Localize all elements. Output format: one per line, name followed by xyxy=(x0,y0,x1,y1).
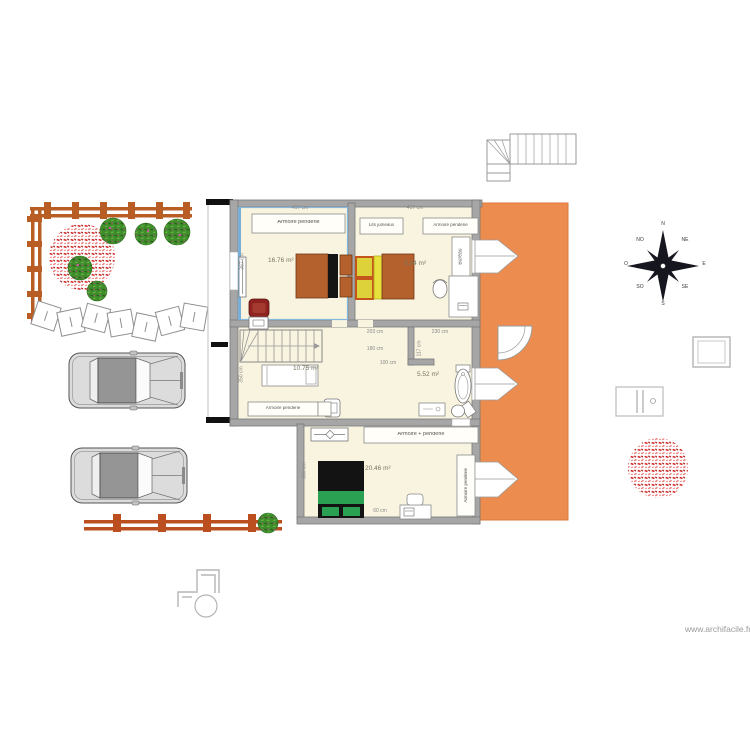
compass-e: E xyxy=(697,262,711,267)
dim-bottom-left-height: 330 cm xyxy=(303,453,308,489)
wardrobe4-label: Armoire + penderie xyxy=(364,432,478,438)
garden-chair-icon-1[interactable] xyxy=(197,570,219,593)
car-2[interactable] xyxy=(71,446,187,505)
wardrobe3-label: Armoire penderie xyxy=(248,406,318,411)
compass-w: O xyxy=(619,262,633,267)
compass-nw: NO xyxy=(633,238,647,243)
wardrobe2-label: Armoire penderie xyxy=(423,223,478,228)
bedroom2-area-label: 9.34 m² xyxy=(404,261,426,268)
dim-hall-width: 203 cm xyxy=(355,330,395,335)
compass-sw: SO xyxy=(633,285,647,290)
compass-n: N xyxy=(656,222,670,227)
watermark: www.archifacile.fr xyxy=(685,625,750,634)
fence-top[interactable] xyxy=(30,202,192,219)
door-icon[interactable] xyxy=(616,387,663,416)
compass-s: S xyxy=(656,302,670,307)
bedroom1-area-label: 16.76 m² xyxy=(268,258,294,265)
desk-chair[interactable] xyxy=(433,280,447,299)
window-icon[interactable] xyxy=(693,337,730,367)
flower-bush-right[interactable] xyxy=(628,438,688,498)
fence-bottom[interactable] xyxy=(84,514,282,532)
stepping-stones[interactable] xyxy=(31,301,208,341)
dim-mid-left-height: 350 cm xyxy=(240,357,245,393)
dim-bath-height: 117 cm xyxy=(418,331,423,367)
wardrobe1-label: Armoire penderie xyxy=(252,220,345,226)
car-1[interactable] xyxy=(69,351,185,410)
balcony-strip[interactable] xyxy=(206,199,233,423)
floor-plan-canvas: 16.76 m² 9.34 m² 10.75 m² 5.52 m² 20.46 … xyxy=(0,0,750,750)
garden-chair-icon-2[interactable] xyxy=(178,592,196,607)
bed-green[interactable] xyxy=(318,461,364,518)
twin-beds-label: Lits jumeaux xyxy=(360,223,403,228)
dim-bath-width: 230 cm xyxy=(420,330,460,335)
desk-label: Bureau xyxy=(459,239,464,275)
desk-bottom[interactable] xyxy=(400,505,431,519)
pedestal-sink[interactable] xyxy=(455,365,471,403)
bathroom-area-label: 5.52 m² xyxy=(417,372,439,379)
garden-table-icon[interactable] xyxy=(195,595,217,617)
bathroom-cabinet[interactable] xyxy=(419,403,445,416)
dim-hall-lower: 100 cm xyxy=(368,361,408,366)
tv-table[interactable] xyxy=(249,317,268,329)
dim-top-left: 457 cm xyxy=(270,206,330,211)
dim-hall-inner: 180 cm xyxy=(355,347,395,352)
dim-top-right: 417 cm xyxy=(385,206,445,211)
chair-bottom[interactable] xyxy=(407,494,423,505)
bedroom4-area-label: 20.46 m² xyxy=(365,466,391,473)
floor-plan-drawing xyxy=(0,0,750,750)
desk-corner[interactable] xyxy=(449,276,478,317)
radiator-bedroom4[interactable] xyxy=(311,428,348,441)
dim-left-height: 367 cm xyxy=(241,244,246,280)
dim-desk-width: 60 cm xyxy=(365,509,395,514)
compass-ne: NE xyxy=(678,238,692,243)
compass-se: SE xyxy=(678,285,692,290)
armchair[interactable] xyxy=(249,299,269,317)
bedroom3-area-label: 10.75 m² xyxy=(293,366,319,373)
wardrobe5-label: Armoire penderie xyxy=(464,456,469,514)
staircase-detached[interactable] xyxy=(487,134,576,181)
